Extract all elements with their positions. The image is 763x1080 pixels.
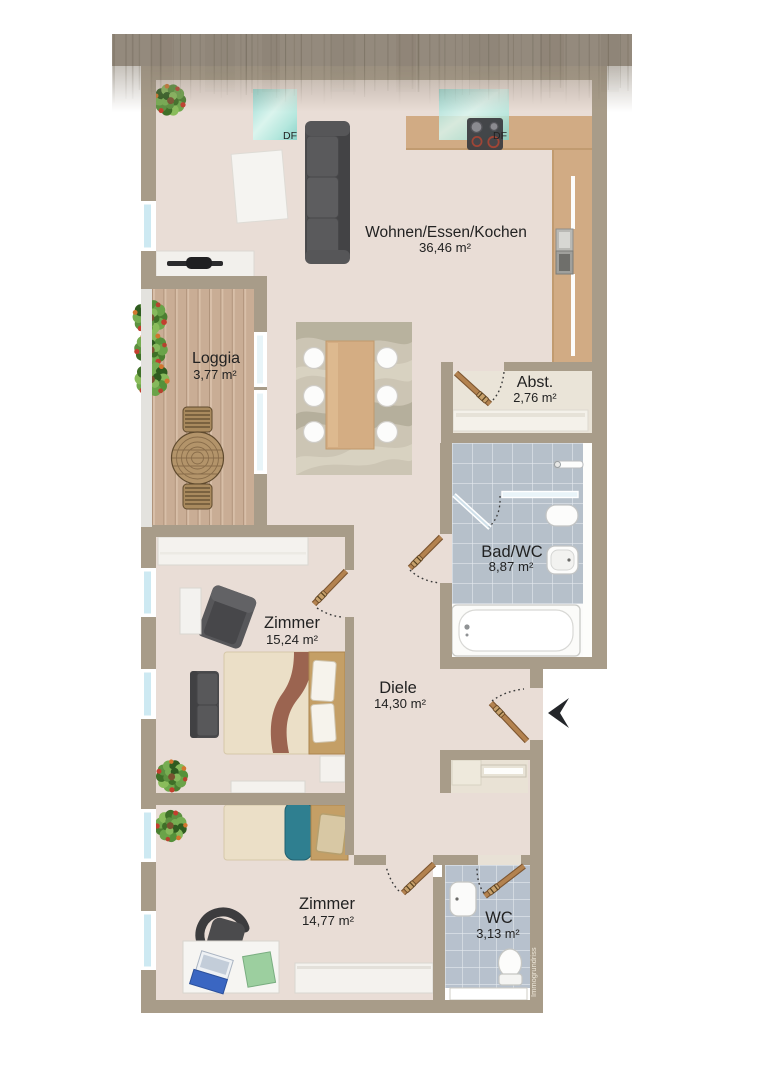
svg-text:14,30 m²: 14,30 m² <box>374 696 427 711</box>
svg-text:36,46 m²: 36,46 m² <box>419 240 472 255</box>
svg-text:DF: DF <box>493 130 507 142</box>
svg-text:2,76 m²: 2,76 m² <box>513 390 557 405</box>
svg-text:8,87 m²: 8,87 m² <box>489 559 534 574</box>
svg-text:Zimmer: Zimmer <box>299 895 355 913</box>
svg-text:3,77 m²: 3,77 m² <box>193 367 237 382</box>
svg-text:3,13 m²: 3,13 m² <box>476 926 520 941</box>
svg-text:WC: WC <box>485 909 513 927</box>
svg-text:Immogrundriss: Immogrundriss <box>529 947 538 997</box>
svg-text:Diele: Diele <box>379 679 417 697</box>
svg-text:Wohnen/Essen/Kochen: Wohnen/Essen/Kochen <box>365 224 527 241</box>
svg-text:Zimmer: Zimmer <box>264 614 320 632</box>
svg-text:14,77 m²: 14,77 m² <box>302 913 355 928</box>
svg-text:Abst.: Abst. <box>517 374 553 391</box>
svg-text:15,24 m²: 15,24 m² <box>266 632 319 647</box>
svg-text:DF: DF <box>283 130 297 142</box>
svg-text:Loggia: Loggia <box>192 350 240 367</box>
